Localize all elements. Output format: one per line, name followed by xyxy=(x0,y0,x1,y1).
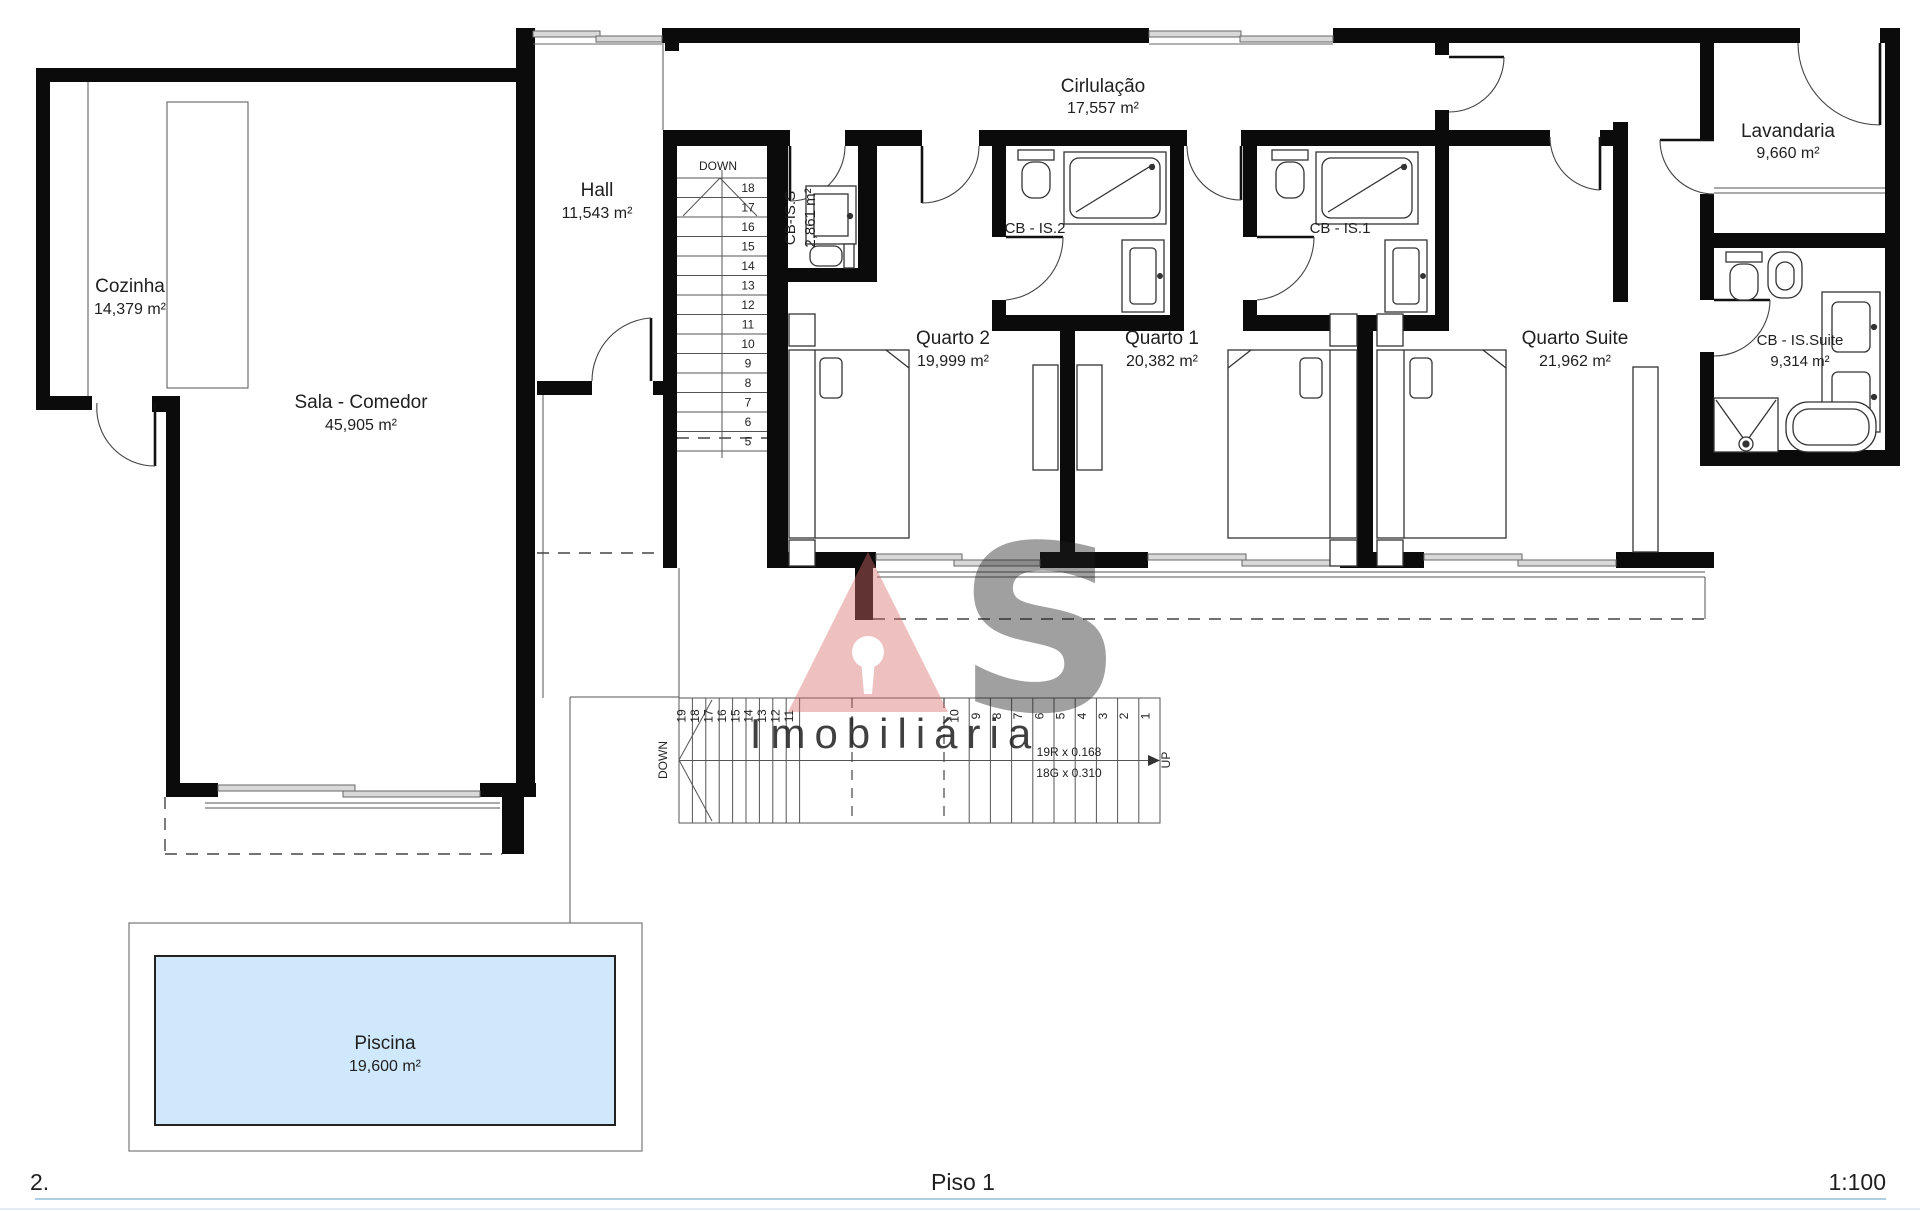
wall-segment xyxy=(1700,248,1714,300)
room-area-circulacao: 17,557 m² xyxy=(1067,100,1140,117)
wall-segment xyxy=(1243,130,1257,237)
bed-quarto1 xyxy=(1228,314,1357,566)
wall-segment xyxy=(1616,552,1714,568)
wall-segment xyxy=(1885,28,1900,466)
stair-number: 11 xyxy=(742,318,755,332)
stair-number: 12 xyxy=(741,298,755,312)
stair-number: 13 xyxy=(741,279,755,293)
wall-segment xyxy=(1613,122,1628,302)
wall-segment xyxy=(36,396,92,410)
sheet-number: 2. xyxy=(30,1169,49,1195)
wall-stub xyxy=(665,43,679,51)
wall-segment xyxy=(1435,110,1449,331)
wall-segment xyxy=(36,68,50,410)
window-glazing xyxy=(218,785,355,791)
room-area-quarto1: 20,382 m² xyxy=(1126,353,1199,370)
room-area-cbiss: 2,861 m² xyxy=(802,188,819,247)
wall-segment xyxy=(1241,130,1435,146)
window-glazing xyxy=(1148,554,1246,560)
window-glazing xyxy=(343,791,480,797)
room-label-piscina: Piscina xyxy=(354,1033,416,1054)
wall-segment xyxy=(1333,28,1800,43)
footer: 2. Piso 1 1:100 xyxy=(0,1169,1920,1209)
stair-number: 9 xyxy=(745,357,752,371)
stair-number: 10 xyxy=(741,337,755,351)
stair-number: 16 xyxy=(715,709,729,723)
wall-segment xyxy=(1700,194,1714,233)
room-area-piscina: 19,600 m² xyxy=(349,1058,422,1075)
wall-segment xyxy=(1357,315,1373,568)
stair-number: 1 xyxy=(1138,712,1152,719)
room-area-hall: 11,543 m² xyxy=(562,205,634,222)
door-swing-arc xyxy=(1550,137,1600,190)
room-label-cbis-suite: CB - IS.Suite xyxy=(1757,332,1844,349)
window-glazing xyxy=(596,36,662,42)
window-glazing xyxy=(1242,560,1340,566)
toilet-cbis1 xyxy=(1272,150,1308,198)
room-label-sala: Sala - Comedor xyxy=(294,392,428,413)
stair-number: 17 xyxy=(741,201,755,215)
door-swing-arc xyxy=(1798,43,1880,125)
floor-plan: DOWN 18 17 16 15 14 13 12 11 10 9 8 7 6 … xyxy=(0,0,1920,1211)
stair-number: 18 xyxy=(741,181,755,195)
room-label-quarto2: Quarto 2 xyxy=(916,328,990,349)
wall-segment xyxy=(1700,43,1714,140)
door-swing-arc xyxy=(97,403,155,466)
stairs-lower-down-label: DOWN xyxy=(656,741,670,779)
window-glazing xyxy=(1149,31,1241,37)
window-glazing xyxy=(533,31,600,37)
wall-segment xyxy=(36,68,530,82)
wardrobe xyxy=(1633,367,1658,552)
shower-cbis1 xyxy=(1316,152,1418,224)
door-swing-arc xyxy=(1006,237,1063,300)
stair-number: 15 xyxy=(728,709,742,723)
door-swing-arc xyxy=(1660,140,1714,194)
wall-segment xyxy=(845,130,922,146)
stair-number: 6 xyxy=(745,415,752,429)
stair-number: 18 xyxy=(688,709,702,723)
bed-quarto-suite xyxy=(1377,314,1506,566)
sink-cbis2 xyxy=(1122,240,1164,312)
window-glazing xyxy=(1240,36,1333,42)
door-swing-arc xyxy=(592,318,651,381)
wall-segment xyxy=(979,130,1187,146)
toilet-suite xyxy=(1726,252,1762,300)
wall-segment xyxy=(663,130,677,568)
stair-number: 16 xyxy=(741,220,755,234)
wall-segment xyxy=(1700,352,1714,450)
room-label-cbiss: CB-IS.S xyxy=(782,191,799,245)
wall-segment xyxy=(662,28,1149,43)
door-swing-arc xyxy=(1187,146,1241,200)
stair-number: 7 xyxy=(745,396,752,410)
door-swing-arc xyxy=(1257,237,1314,300)
shower-cbis2 xyxy=(1064,152,1166,224)
watermark-company: Imobiliária xyxy=(750,710,1040,757)
room-label-cbis2: CB - IS.2 xyxy=(1005,220,1066,237)
bidet-suite xyxy=(1768,252,1802,298)
bed-quarto2 xyxy=(789,314,909,566)
room-label-hall: Hall xyxy=(581,180,614,201)
wall-segment xyxy=(767,268,877,282)
wall-segment xyxy=(166,396,180,797)
wardrobe xyxy=(1077,365,1102,470)
room-area-lavandaria: 9,660 m² xyxy=(1756,145,1820,162)
room-label-quarto1: Quarto 1 xyxy=(1125,328,1199,349)
room-area-quarto-suite: 21,962 m² xyxy=(1539,353,1612,370)
wall-segment xyxy=(1600,130,1613,146)
stairs-lower-up-label: UP xyxy=(1159,752,1173,769)
sheet-title: Piso 1 xyxy=(931,1169,995,1195)
wall-segment xyxy=(677,130,790,146)
door-swing-arc xyxy=(922,146,979,203)
kitchen-island xyxy=(167,102,248,388)
sheet-scale: 1:100 xyxy=(1828,1169,1886,1195)
wall-segment xyxy=(516,28,535,797)
window-glazing xyxy=(1424,554,1522,560)
stair-number: 5 xyxy=(745,435,752,449)
shower-suite xyxy=(1714,398,1778,452)
stair-number: 14 xyxy=(741,259,755,273)
stair-number: 19 xyxy=(675,709,689,723)
room-label-cozinha: Cozinha xyxy=(95,276,165,297)
wall-segment xyxy=(1700,233,1900,248)
door-swing-arc xyxy=(1449,57,1504,112)
stair-going-note: 18G x 0.310 xyxy=(1036,766,1102,780)
wall-segment xyxy=(166,783,218,797)
stair-number: 15 xyxy=(741,240,755,254)
window-glazing xyxy=(876,554,962,560)
wall-segment xyxy=(1170,130,1184,331)
room-label-circulacao: Cirlulação xyxy=(1061,76,1145,97)
room-label-quarto-suite: Quarto Suite xyxy=(1522,328,1629,349)
stair-number: 8 xyxy=(745,376,752,390)
room-label-cbis1: CB - IS.1 xyxy=(1310,220,1371,237)
stairs-upper-label: DOWN xyxy=(699,159,737,173)
bathtub-suite xyxy=(1786,402,1876,452)
room-area-cozinha: 14,379 m² xyxy=(94,301,167,318)
wall-segment xyxy=(1435,28,1449,55)
wall-segment xyxy=(537,381,592,395)
stair-number: 17 xyxy=(702,709,716,723)
toilet-cbis2 xyxy=(1018,150,1054,198)
stairs-upper: DOWN 18 17 16 15 14 13 12 11 10 9 8 7 6 … xyxy=(677,159,767,458)
wall-segment xyxy=(1449,130,1550,146)
sink-cbis1 xyxy=(1385,240,1427,312)
room-label-lavandaria: Lavandaria xyxy=(1741,121,1835,142)
room-area-sala: 45,905 m² xyxy=(325,417,398,434)
room-area-quarto2: 19,999 m² xyxy=(917,353,990,370)
room-area-cbis-suite: 9,314 m² xyxy=(1770,353,1829,370)
wall-pillar xyxy=(502,797,524,854)
wardrobe xyxy=(1033,365,1058,470)
window-glazing xyxy=(1518,560,1616,566)
wall-segment xyxy=(858,130,877,282)
